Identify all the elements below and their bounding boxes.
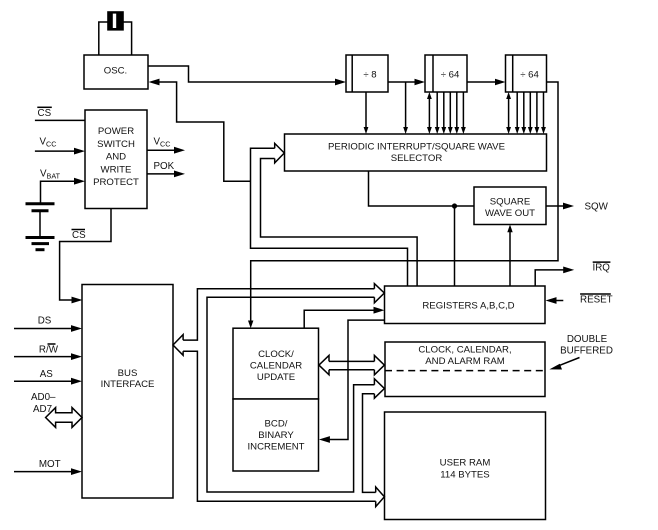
svg-text:UPDATE: UPDATE bbox=[257, 372, 295, 383]
svg-text:IRQ: IRQ bbox=[593, 263, 611, 274]
svg-text:BINARY: BINARY bbox=[258, 430, 294, 441]
svg-text:SQUARE: SQUARE bbox=[490, 196, 531, 207]
svg-text:CS: CS bbox=[72, 230, 86, 241]
svg-text:÷ 64: ÷ 64 bbox=[441, 70, 460, 81]
svg-text:CS: CS bbox=[38, 108, 52, 119]
svg-text:BUFFERED: BUFFERED bbox=[560, 346, 613, 357]
svg-text:114 BYTES: 114 BYTES bbox=[440, 469, 489, 480]
svg-text:÷ 8: ÷ 8 bbox=[363, 70, 376, 81]
svg-text:AND ALARM RAM: AND ALARM RAM bbox=[425, 356, 504, 367]
svg-text:RESET: RESET bbox=[580, 295, 613, 306]
svg-text:BCD/: BCD/ bbox=[265, 419, 288, 430]
svg-text:PROTECT: PROTECT bbox=[93, 177, 139, 188]
svg-text:BUS: BUS bbox=[118, 368, 138, 379]
svg-text:POK: POK bbox=[154, 161, 175, 172]
svg-text:POWER: POWER bbox=[98, 126, 134, 137]
svg-text:R/W: R/W bbox=[39, 345, 59, 356]
svg-text:DOUBLE: DOUBLE bbox=[567, 334, 608, 345]
svg-text:SQW: SQW bbox=[585, 201, 609, 212]
svg-text:AND: AND bbox=[106, 152, 126, 163]
svg-text:SWITCH: SWITCH bbox=[97, 139, 135, 150]
svg-text:WRITE: WRITE bbox=[101, 164, 132, 175]
svg-text:SELECTOR: SELECTOR bbox=[391, 153, 443, 164]
svg-text:PERIODIC INTERRUPT/SQUARE WAVE: PERIODIC INTERRUPT/SQUARE WAVE bbox=[328, 141, 505, 152]
svg-text:CLOCK, CALENDAR,: CLOCK, CALENDAR, bbox=[418, 345, 511, 356]
svg-text:OSC.: OSC. bbox=[104, 66, 127, 77]
svg-text:CLOCK/: CLOCK/ bbox=[258, 349, 294, 360]
svg-text:INTERFACE: INTERFACE bbox=[101, 379, 155, 390]
svg-text:CALENDAR: CALENDAR bbox=[250, 360, 302, 371]
svg-text:MOT: MOT bbox=[39, 459, 61, 470]
svg-text:WAVE OUT: WAVE OUT bbox=[485, 208, 535, 219]
svg-text:DS: DS bbox=[38, 316, 52, 327]
svg-text:INCREMENT: INCREMENT bbox=[247, 441, 304, 452]
svg-text:AS: AS bbox=[40, 369, 54, 380]
svg-text:÷ 64: ÷ 64 bbox=[520, 70, 539, 81]
svg-text:USER RAM: USER RAM bbox=[440, 458, 491, 469]
svg-text:REGISTERS A,B,C,D: REGISTERS A,B,C,D bbox=[422, 300, 514, 311]
svg-text:AD0–: AD0– bbox=[31, 392, 56, 403]
